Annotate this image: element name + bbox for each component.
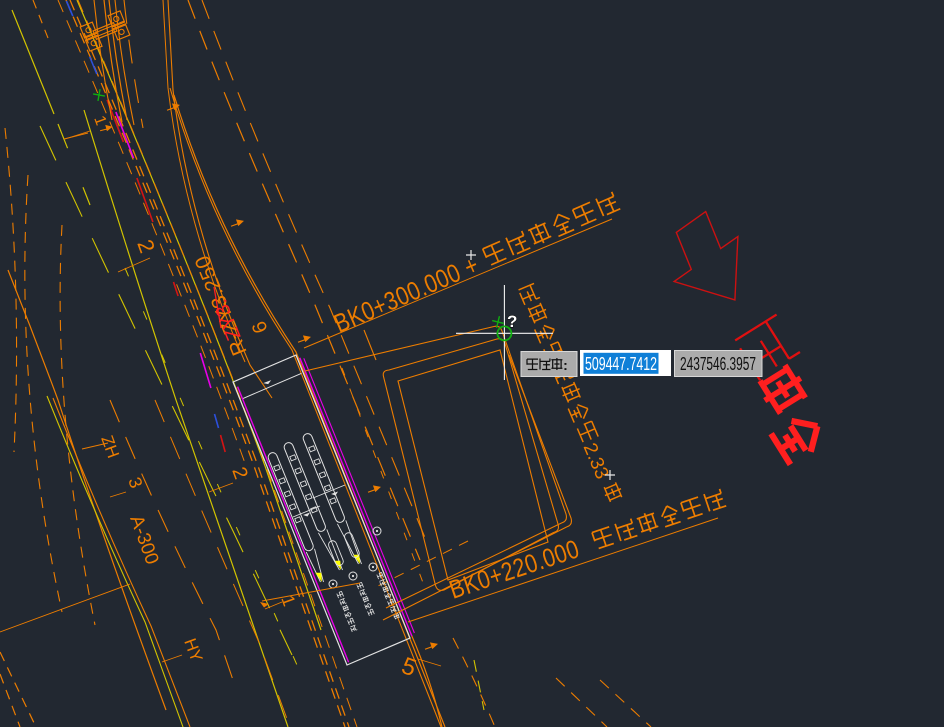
svg-text:509447.7412: 509447.7412 [585, 353, 657, 374]
svg-text:?: ? [507, 312, 517, 331]
svg-text:2437546.3957: 2437546.3957 [680, 354, 756, 374]
svg-text::: : [563, 357, 568, 373]
